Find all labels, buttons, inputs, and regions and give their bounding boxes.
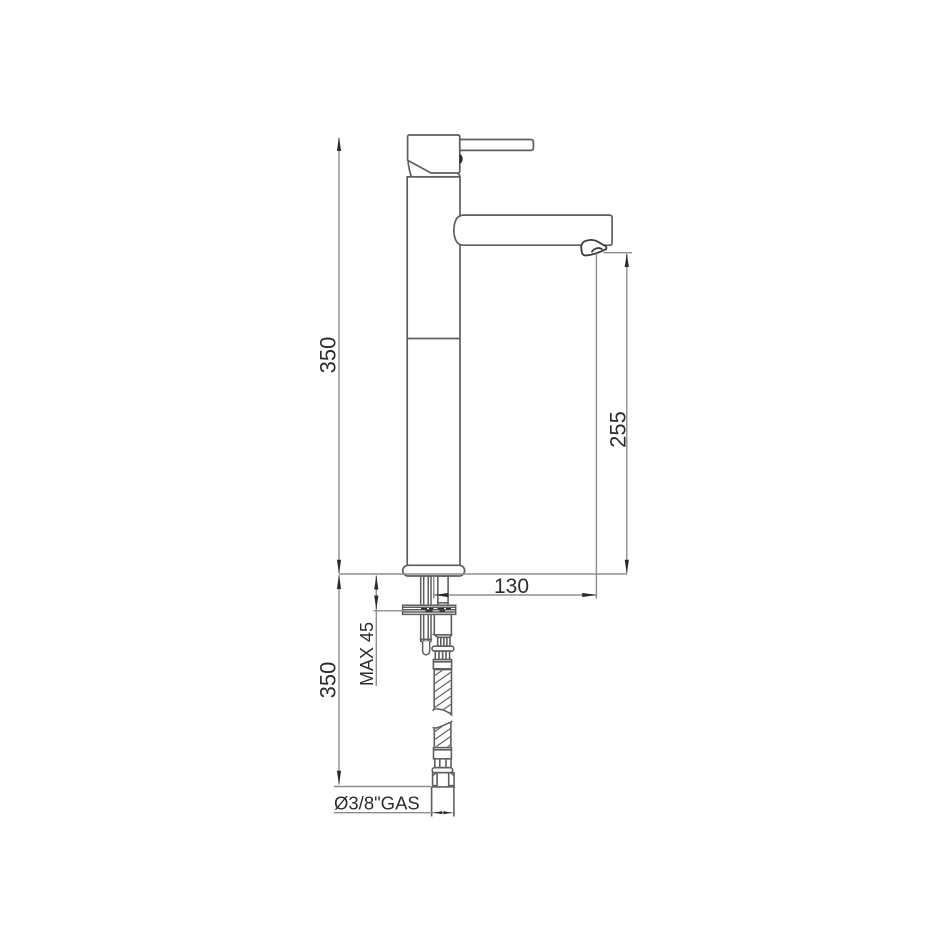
svg-text:350: 350 xyxy=(315,662,340,699)
svg-text:MAX 45: MAX 45 xyxy=(357,622,377,686)
svg-text:Ø3/8"GAS: Ø3/8"GAS xyxy=(334,793,420,814)
svg-text:350: 350 xyxy=(315,337,340,374)
svg-text:130: 130 xyxy=(494,575,529,598)
svg-text:255: 255 xyxy=(605,411,630,448)
